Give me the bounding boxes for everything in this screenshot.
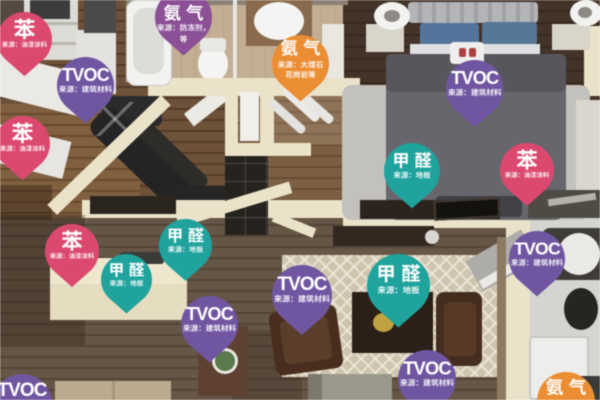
svg-text:TVOC: TVOC	[186, 303, 234, 323]
svg-text:TVOC: TVOC	[403, 357, 451, 378]
svg-text:TVOC: TVOC	[514, 239, 561, 259]
svg-text:TVOC: TVOC	[62, 65, 110, 85]
svg-text:TVOC: TVOC	[451, 68, 499, 88]
svg-text:TVOC: TVOC	[0, 380, 48, 400]
svg-text:TVOC: TVOC	[277, 274, 327, 295]
